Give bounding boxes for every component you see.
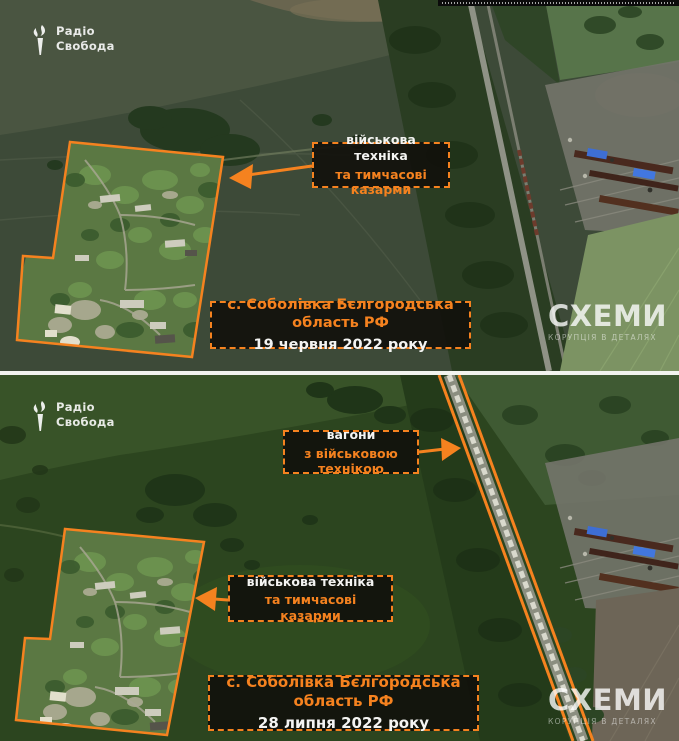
watermark-title: СХЕМИ (548, 302, 667, 331)
image-credit-strip (438, 0, 679, 6)
annotation-box-wagons: вагони з військовою технікою (283, 430, 419, 474)
skhemy-watermark-bottom: СХЕМИ КОРУПЦІЯ В ДЕТАЛЯХ (548, 686, 667, 726)
torch-icon (30, 400, 50, 432)
watermark-subtitle: КОРУПЦІЯ В ДЕТАЛЯХ (548, 333, 667, 342)
logo-text-line2: Свобода (56, 415, 115, 430)
caption-location-top: с. Соболівка Бєлгородська область РФ (218, 296, 463, 332)
watermark-subtitle: КОРУПЦІЯ В ДЕТАЛЯХ (548, 717, 667, 726)
annotation-line-orange: та тимчасові казарми (320, 167, 442, 198)
annotation-box-equipment-top: військова техніка та тимчасові казарми (312, 142, 450, 188)
news-graphic: Радіо Свобода військова техніка та тимча… (0, 0, 679, 741)
logo-text-line1: Радіо (56, 400, 115, 415)
caption-box-top: с. Соболівка Бєлгородська область РФ 19 … (210, 301, 471, 349)
annotation-line-white: вагони (327, 427, 376, 443)
caption-location-bottom: с. Соболівка Бєлгородська область РФ (216, 673, 471, 711)
skhemy-watermark-top: СХЕМИ КОРУПЦІЯ В ДЕТАЛЯХ (548, 302, 667, 342)
torch-icon (30, 24, 50, 56)
radio-svoboda-logo-bottom: Радіо Свобода (30, 400, 115, 432)
watermark-title: СХЕМИ (548, 686, 667, 715)
satellite-composite (0, 0, 679, 741)
annotation-line-orange: та тимчасові казарми (236, 592, 385, 623)
caption-date-bottom: 28 липня 2022 року (258, 714, 429, 733)
annotation-line-orange: з військовою технікою (291, 446, 411, 477)
logo-text-line1: Радіо (56, 24, 115, 39)
logo-text-line2: Свобода (56, 39, 115, 54)
panel-separator (0, 371, 679, 375)
caption-date-top: 19 червня 2022 року (254, 336, 428, 354)
annotation-box-equipment-bottom: військова техніка та тимчасові казарми (228, 575, 393, 622)
caption-box-bottom: с. Соболівка Бєлгородська область РФ 28 … (208, 675, 479, 731)
annotation-line-white: військова техніка (247, 574, 375, 590)
annotation-line-white: військова техніка (320, 132, 442, 163)
radio-svoboda-logo-top: Радіо Свобода (30, 24, 115, 56)
